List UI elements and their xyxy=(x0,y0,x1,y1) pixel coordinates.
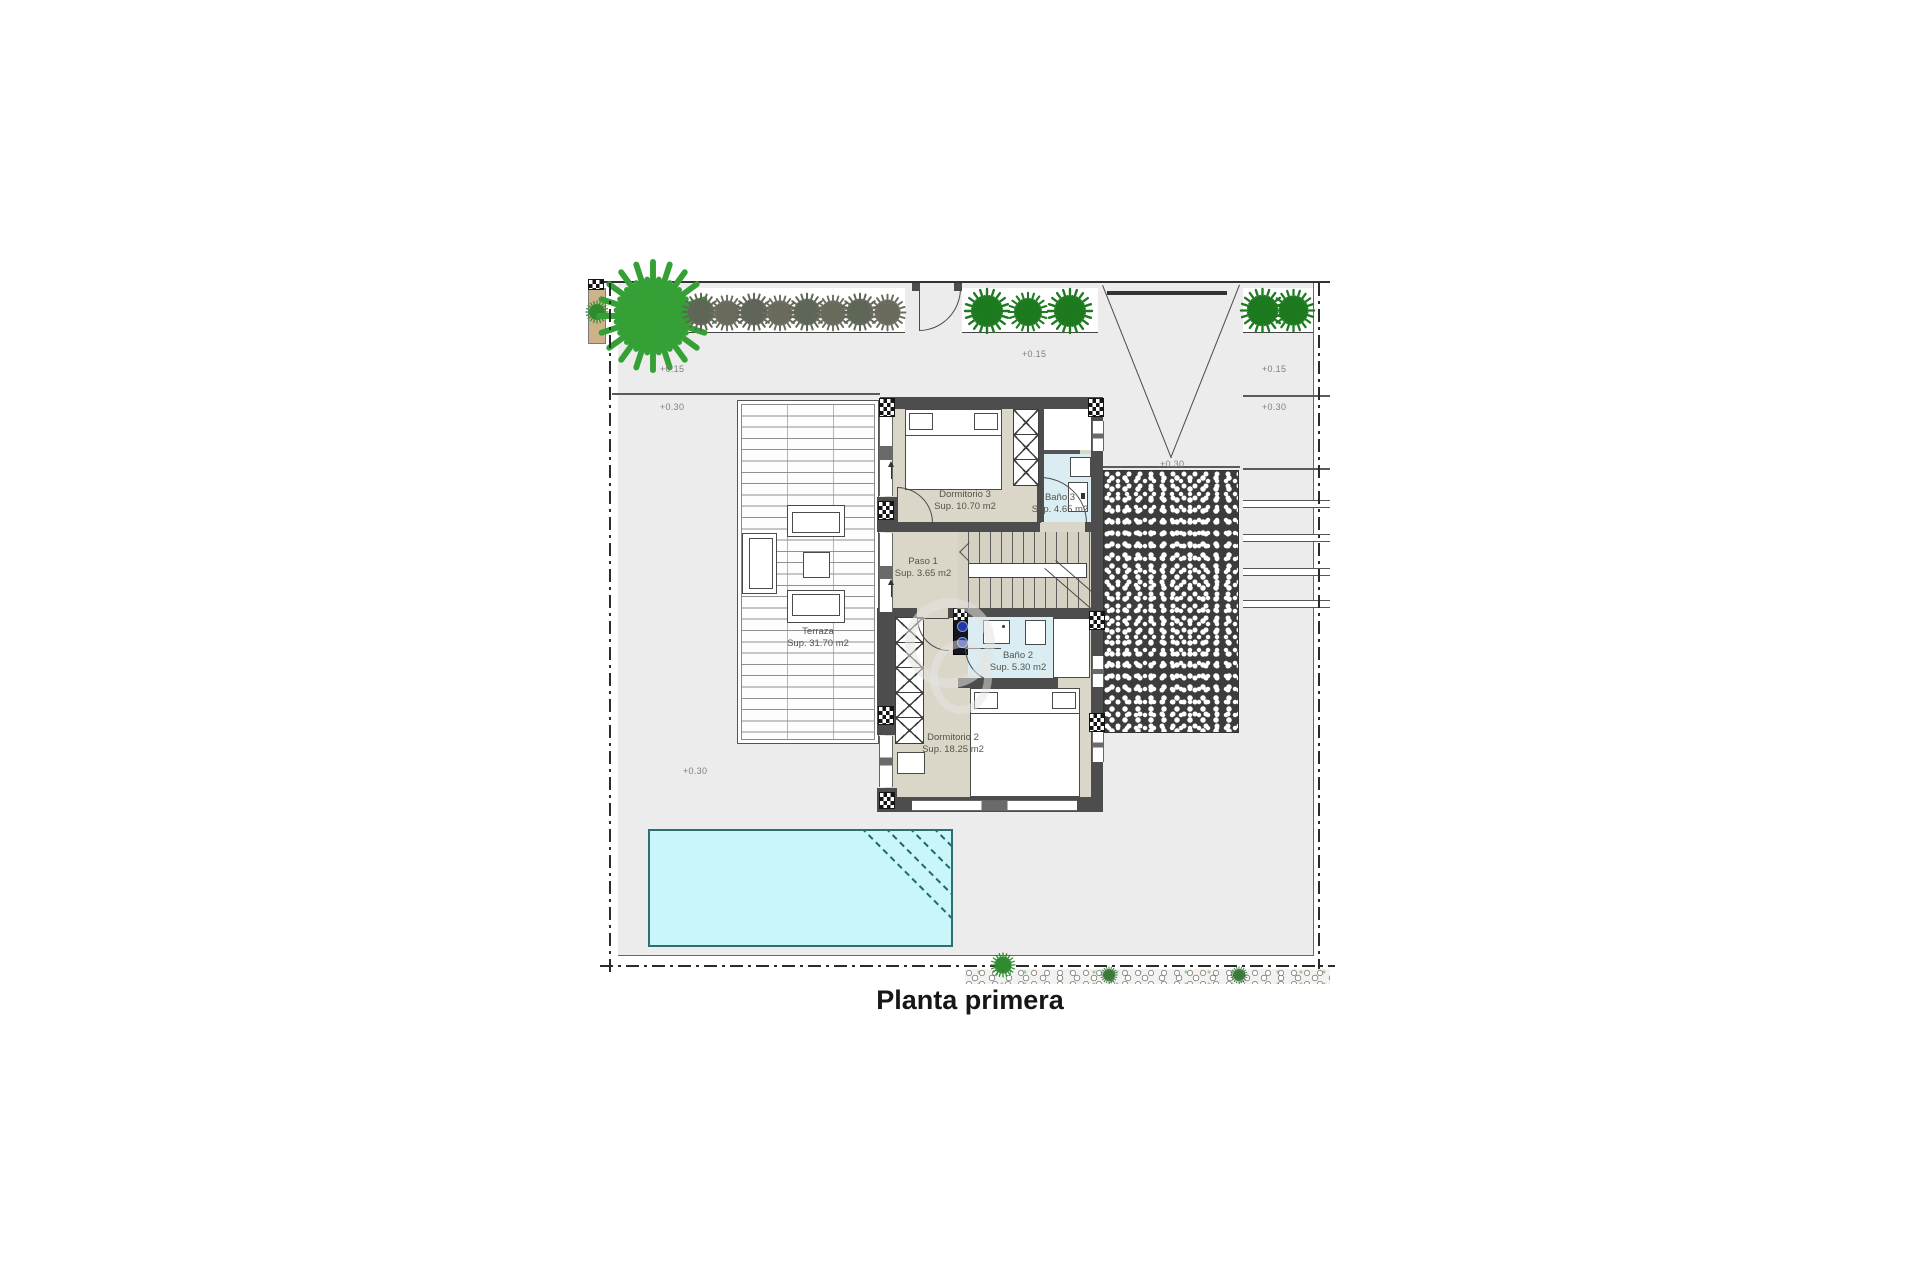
step-edge xyxy=(1243,600,1330,608)
window-right-bano2 xyxy=(1092,656,1104,687)
level-line-left xyxy=(612,393,880,395)
terrace-sofa xyxy=(787,590,845,623)
room-label-paso1: Paso 1 Sup. 3.65 m2 xyxy=(893,556,953,581)
level-line-right xyxy=(1243,395,1330,397)
wardrobe-dorm3 xyxy=(1013,409,1039,436)
room-label-bano2: Baño 2 Sup. 5.30 m2 xyxy=(988,650,1048,675)
bano3-sink xyxy=(1070,457,1091,477)
room-label-dorm2: Dormitorio 2 Sup. 18.25 m2 xyxy=(912,732,994,757)
watermark xyxy=(930,640,992,714)
window-hardware-marker xyxy=(879,792,895,809)
swimming-pool xyxy=(648,829,953,947)
gray-palm-icon xyxy=(868,293,907,332)
floor-plan-page: +0.15 +0.15 +0.15 +0.30 +0.30 +0.30 +0.3… xyxy=(0,0,1920,1280)
closet-room xyxy=(1044,409,1091,450)
window-dorm2-bottom xyxy=(912,800,1077,811)
wardrobe-dorm3 xyxy=(1013,434,1039,461)
window-dorm3-terrace xyxy=(879,410,893,496)
room-name: Dormitorio 2 xyxy=(912,732,994,744)
wall-hall-upper xyxy=(897,522,1040,532)
opening-arrow-icon xyxy=(891,464,892,479)
grass-tuft-icon xyxy=(1100,966,1118,984)
window-paso-terrace xyxy=(879,533,893,612)
room-area: Sup. 3.65 m2 xyxy=(893,568,953,580)
terrace-sofa xyxy=(742,533,777,594)
pebble-strip xyxy=(965,969,1330,984)
level-label: +0.15 xyxy=(1262,364,1286,374)
grass-tuft-icon xyxy=(1230,966,1248,984)
wall-top xyxy=(880,397,1103,409)
boundary-bottom xyxy=(600,965,1335,967)
terrace-table xyxy=(803,552,830,578)
window-hardware-marker xyxy=(1089,713,1105,732)
boundary-left xyxy=(609,283,611,973)
steps-top-line xyxy=(1243,468,1330,470)
level-label: +0.15 xyxy=(660,364,684,374)
terrace-sofa xyxy=(787,505,845,537)
window-hardware-marker xyxy=(1088,398,1104,417)
room-area: Sup. 18.25 m2 xyxy=(912,744,994,756)
grass-tuft-icon xyxy=(990,952,1016,978)
window-hardware-marker xyxy=(878,501,894,520)
window-hardware-marker xyxy=(878,706,894,725)
level-label: +0.30 xyxy=(660,402,684,412)
step-edge xyxy=(1243,568,1330,576)
bano2-sink xyxy=(1025,620,1046,645)
room-name: Terraza xyxy=(778,626,858,638)
green-palm-icon xyxy=(1271,288,1316,333)
page-title: Planta primera xyxy=(840,985,1100,1016)
room-area: Sup. 5.30 m2 xyxy=(988,662,1048,674)
room-name: Baño 2 xyxy=(988,650,1048,662)
window-dorm2-left xyxy=(879,736,893,787)
green-palm-icon xyxy=(963,287,1011,335)
room-area: Sup. 31.70 m2 xyxy=(778,638,858,650)
window-right-upper xyxy=(1092,421,1104,451)
bano2-shower-enclosure xyxy=(1053,618,1090,678)
step-edge xyxy=(1243,534,1330,542)
room-name: Paso 1 xyxy=(893,556,953,568)
room-area: Sup. 4.65 m2 xyxy=(1028,504,1092,516)
room-area: Sup. 10.70 m2 xyxy=(925,501,1005,513)
window-right-dorm2 xyxy=(1092,728,1104,762)
room-label-dorm3: Dormitorio 3 Sup. 10.70 m2 xyxy=(925,489,1005,514)
level-label: +0.30 xyxy=(683,766,707,776)
level-label: +0.30 xyxy=(1160,459,1184,469)
level-label: +0.30 xyxy=(1262,402,1286,412)
wall-hall-upper-right xyxy=(1085,522,1103,532)
green-palm-icon xyxy=(1007,291,1049,333)
pool-steps xyxy=(885,829,953,934)
room-label-terraza: Terraza Sup. 31.70 m2 xyxy=(778,626,858,651)
green-palm-icon xyxy=(1046,287,1094,335)
wardrobe-dorm3 xyxy=(1013,459,1039,486)
window-hardware-marker xyxy=(879,398,895,417)
driveway-gate-bar xyxy=(1107,291,1227,295)
room-name: Baño 3 xyxy=(1028,492,1092,504)
wardrobe-hall xyxy=(895,692,924,719)
level-label: +0.15 xyxy=(1022,349,1046,359)
window-hardware-marker xyxy=(1089,611,1105,630)
step-edge xyxy=(1243,500,1330,508)
boundary-right xyxy=(1318,283,1320,973)
room-name: Dormitorio 3 xyxy=(925,489,1005,501)
opening-arrow-icon xyxy=(891,582,892,597)
bed-dorm3 xyxy=(905,409,1002,490)
gravel-area xyxy=(1103,470,1239,733)
room-label-bano3: Baño 3 Sup. 4.65 m2 xyxy=(1028,492,1092,517)
